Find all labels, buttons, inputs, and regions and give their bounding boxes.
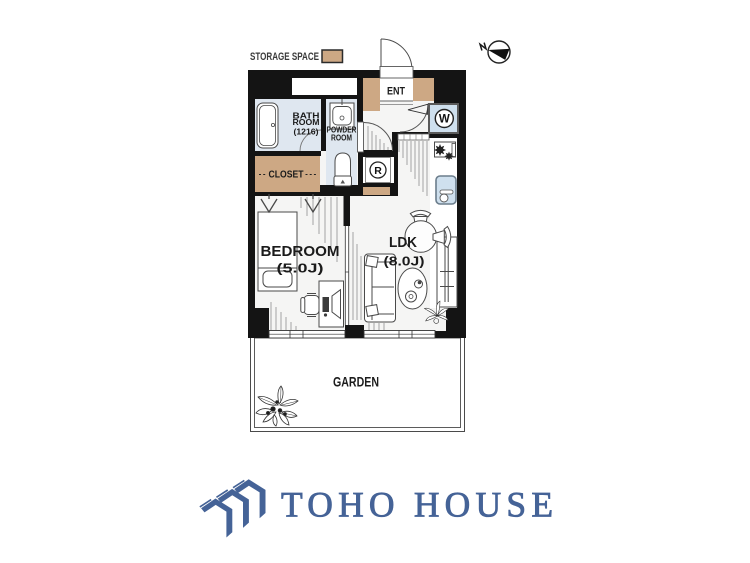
svg-text:ROOM: ROOM — [293, 118, 320, 127]
svg-text:W: W — [439, 114, 450, 126]
svg-text:CLOSET: CLOSET — [269, 170, 304, 181]
svg-text:TOHO HOUSE: TOHO HOUSE — [281, 485, 553, 525]
svg-text:R: R — [374, 165, 382, 177]
svg-text:GARDEN: GARDEN — [333, 374, 379, 390]
svg-text:ENT: ENT — [387, 86, 405, 98]
svg-text:BEDROOM: BEDROOM — [261, 244, 340, 260]
svg-text:(8.0J): (8.0J) — [384, 254, 425, 269]
svg-text:(1216): (1216) — [294, 128, 319, 137]
svg-text:ROOM: ROOM — [331, 134, 352, 143]
svg-text:(5.0J): (5.0J) — [277, 261, 324, 276]
svg-text:LDK: LDK — [389, 235, 417, 251]
svg-text:STORAGE SPACE: STORAGE SPACE — [250, 51, 319, 63]
